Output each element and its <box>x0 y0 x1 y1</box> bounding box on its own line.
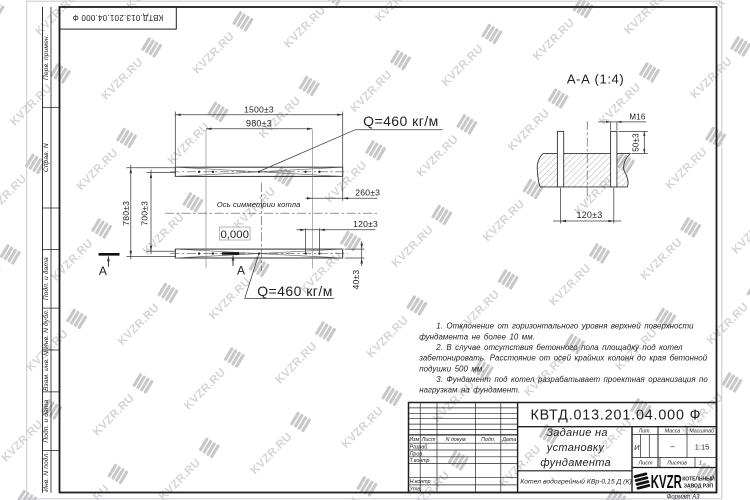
svg-text:фундамента не более 10 мм.: фундамента не более 10 мм. <box>419 332 535 341</box>
svg-text:фундамента: фундамента <box>540 457 611 469</box>
svg-text:120±3: 120±3 <box>353 219 378 229</box>
svg-text:Ось симметрии котла: Ось симметрии котла <box>217 200 301 209</box>
svg-text:260±3: 260±3 <box>355 188 380 198</box>
svg-text:Масштаб: Масштаб <box>689 428 715 434</box>
svg-text:Задание на: Задание на <box>546 427 608 439</box>
svg-text:Лист: Лист <box>637 461 653 467</box>
svg-text:КВТД.013.201.04.000 Ф: КВТД.013.201.04.000 Ф <box>530 407 701 423</box>
svg-text:1500±3: 1500±3 <box>244 104 274 114</box>
svg-text:1: 1 <box>699 461 702 467</box>
svg-text:Т.контр: Т.контр <box>410 458 430 464</box>
svg-text:Листов: Листов <box>666 461 687 467</box>
svg-text:KVZR: KVZR <box>651 471 682 492</box>
svg-text:1:15: 1:15 <box>695 442 710 451</box>
svg-text:1. Отклонение от горизонтально: 1. Отклонение от горизонтального уровня … <box>436 322 694 331</box>
svg-text:2. В случае отсутствия бетонно: 2. В случае отсутствия бетонного пола пл… <box>435 343 683 352</box>
svg-text:0,000: 0,000 <box>220 229 249 241</box>
svg-text:И: И <box>634 443 640 452</box>
svg-text:Пров.: Пров. <box>410 451 424 457</box>
svg-text:N докум.: N докум. <box>446 437 467 443</box>
svg-text:А: А <box>99 264 107 278</box>
svg-text:КВТД.013.201.04.000 Ф: КВТД.013.201.04.000 Ф <box>72 13 163 22</box>
svg-text:Подп. и дата: Подп. и дата <box>42 400 50 443</box>
svg-text:Разраб.: Разраб. <box>410 445 429 451</box>
svg-text:120±3: 120±3 <box>577 210 603 220</box>
svg-text:забетонировать. Расстояние от: забетонировать. Расстояние от осей крайн… <box>418 354 708 363</box>
svg-text:50±3: 50±3 <box>632 133 641 152</box>
svg-text:Взам. инв. N: Взам. инв. N <box>43 351 50 391</box>
svg-text:780±3: 780±3 <box>121 201 131 226</box>
svg-text:980±3: 980±3 <box>246 119 272 129</box>
svg-text:А-А (1:4): А-А (1:4) <box>567 71 624 86</box>
svg-text:Справ. N: Справ. N <box>43 143 50 172</box>
svg-text:М16: М16 <box>629 113 646 122</box>
svg-text:Q=460 кг/м: Q=460 кг/м <box>363 113 439 129</box>
svg-text:Котел водогрейный КВр-0,15 Д (: Котел водогрейный КВр-0,15 Д (К) <box>520 478 631 486</box>
svg-text:Лист: Лист <box>421 437 436 443</box>
svg-text:А: А <box>237 264 245 278</box>
svg-text:Дата: Дата <box>501 437 516 443</box>
svg-text:Подп.: Подп. <box>481 437 495 443</box>
svg-text:–: – <box>670 442 675 451</box>
svg-text:Лит.: Лит. <box>638 428 651 434</box>
svg-text:40±3: 40±3 <box>351 270 361 290</box>
svg-text:Н.контр: Н.контр <box>410 479 431 485</box>
svg-text:ЗАВОД РЭП: ЗАВОД РЭП <box>684 483 714 489</box>
svg-text:Формат А3: Формат А3 <box>667 494 700 500</box>
svg-text:подушки 500 мм.: подушки 500 мм. <box>419 364 484 373</box>
svg-text:КОТЕЛЬНЫЙ: КОТЕЛЬНЫЙ <box>682 475 715 483</box>
svg-text:700±3: 700±3 <box>140 201 150 226</box>
svg-text:Инв. N подл.: Инв. N подл. <box>42 452 50 492</box>
svg-text:Инв. N дубл.: Инв. N дубл. <box>42 309 50 349</box>
svg-text:Подп. и дата: Подп. и дата <box>42 257 50 300</box>
svg-text:Перв. примен.: Перв. примен. <box>43 34 50 80</box>
svg-text:Масса: Масса <box>665 428 681 434</box>
svg-text:Изм: Изм <box>409 437 419 443</box>
svg-text:3. Фундамент под котел разраба: 3. Фундамент под котел разрабатывает про… <box>436 375 708 384</box>
svg-text:установку: установку <box>546 442 606 454</box>
svg-text:Q=460 кг/м: Q=460 кг/м <box>257 283 333 299</box>
svg-text:нагрузкам на фундамент.: нагрузкам на фундамент. <box>419 386 520 395</box>
svg-text:Утв.: Утв. <box>410 486 422 492</box>
